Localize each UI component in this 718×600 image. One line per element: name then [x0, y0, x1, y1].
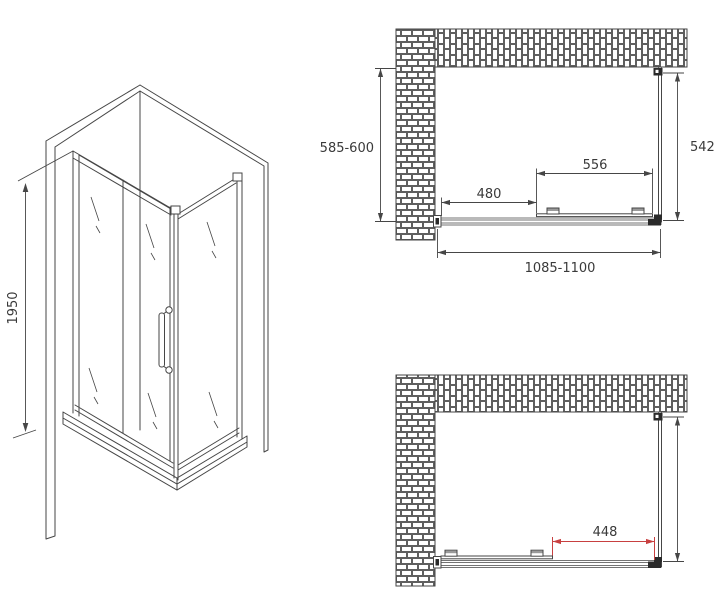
wall-left — [396, 29, 435, 240]
roller — [531, 550, 543, 556]
depth-dimension-label: 585-600 — [320, 141, 374, 156]
handle-top-mount — [166, 307, 172, 313]
wall-top — [435, 375, 687, 412]
arrow-down-icon — [675, 212, 680, 221]
height-dimension: 1950 — [6, 151, 73, 438]
dimension-overall-width: 1085-1100 — [438, 229, 661, 276]
dimension-depth: 585-600 — [320, 69, 396, 222]
right-wall — [140, 85, 268, 452]
arrow-up-icon — [23, 183, 29, 192]
shower-tray — [63, 412, 247, 490]
door-track — [441, 561, 661, 568]
side-extension-lines — [663, 417, 684, 562]
arrow-right-icon — [652, 250, 661, 255]
drawing-canvas: 1950 — [0, 0, 718, 600]
side-extension-lines — [663, 73, 684, 221]
top-rails — [73, 151, 236, 219]
arrow-up-icon — [675, 73, 680, 82]
arrow-left-icon — [537, 171, 546, 176]
wall-left — [396, 375, 435, 586]
sliding-door-open — [441, 550, 553, 559]
fixed-dimension-label: 480 — [477, 187, 502, 202]
arrow-down-icon — [378, 213, 383, 222]
roller — [445, 550, 457, 556]
arrow-left-icon — [438, 250, 447, 255]
opening-extension-lines — [553, 537, 655, 560]
dimension-side-unlabeled — [663, 417, 684, 562]
arrow-down-icon — [23, 423, 29, 432]
height-extension-lines — [13, 151, 73, 438]
arrow-up-icon — [675, 417, 680, 426]
side-panel-glass — [659, 68, 662, 222]
right-post-cap — [233, 173, 242, 181]
arrow-right-icon — [644, 171, 653, 176]
wall-profile — [434, 557, 442, 569]
width-dimension-label: 1085-1100 — [525, 261, 596, 276]
plan-view-closed: 585-600 542 556 480 — [320, 29, 715, 276]
height-dimension-label: 1950 — [6, 291, 21, 324]
wall-top — [435, 29, 687, 67]
arrow-right-icon — [646, 539, 655, 544]
wall-profile — [434, 216, 442, 228]
handle-bottom-mount — [166, 367, 172, 373]
arrow-down-icon — [675, 553, 680, 562]
side-dimension-label: 542 — [690, 140, 715, 155]
arrow-right-icon — [528, 200, 537, 205]
plan-view-open: 448 — [396, 375, 687, 586]
corner-bracket — [171, 206, 180, 214]
roller — [632, 208, 644, 214]
bottom-door-rail — [75, 405, 239, 470]
left-wall — [46, 85, 140, 539]
door-track — [441, 218, 661, 225]
door-dimension-label: 556 — [583, 158, 608, 173]
side-panel-glass — [659, 413, 662, 567]
dimension-fixed-panel: 480 — [442, 187, 537, 216]
door-extension-lines — [537, 169, 653, 214]
dimension-opening: 448 — [553, 525, 655, 560]
isometric-view: 1950 — [6, 85, 268, 539]
width-extension-lines — [438, 229, 661, 258]
arrow-left-icon — [442, 200, 451, 205]
technical-drawing: 1950 — [0, 0, 718, 600]
arrow-left-icon — [553, 539, 562, 544]
roller — [547, 208, 559, 214]
arrow-up-icon — [378, 69, 383, 78]
dimension-side-panel: 542 — [663, 73, 715, 221]
dimension-door: 556 — [537, 158, 653, 213]
wall-bracket — [654, 413, 663, 421]
depth-extension-lines — [375, 69, 396, 222]
glass-reflection-marks — [89, 197, 218, 429]
wall-bracket — [654, 68, 663, 76]
opening-dimension-label: 448 — [593, 525, 618, 540]
sliding-door — [537, 208, 653, 217]
handle-bar — [159, 313, 165, 367]
